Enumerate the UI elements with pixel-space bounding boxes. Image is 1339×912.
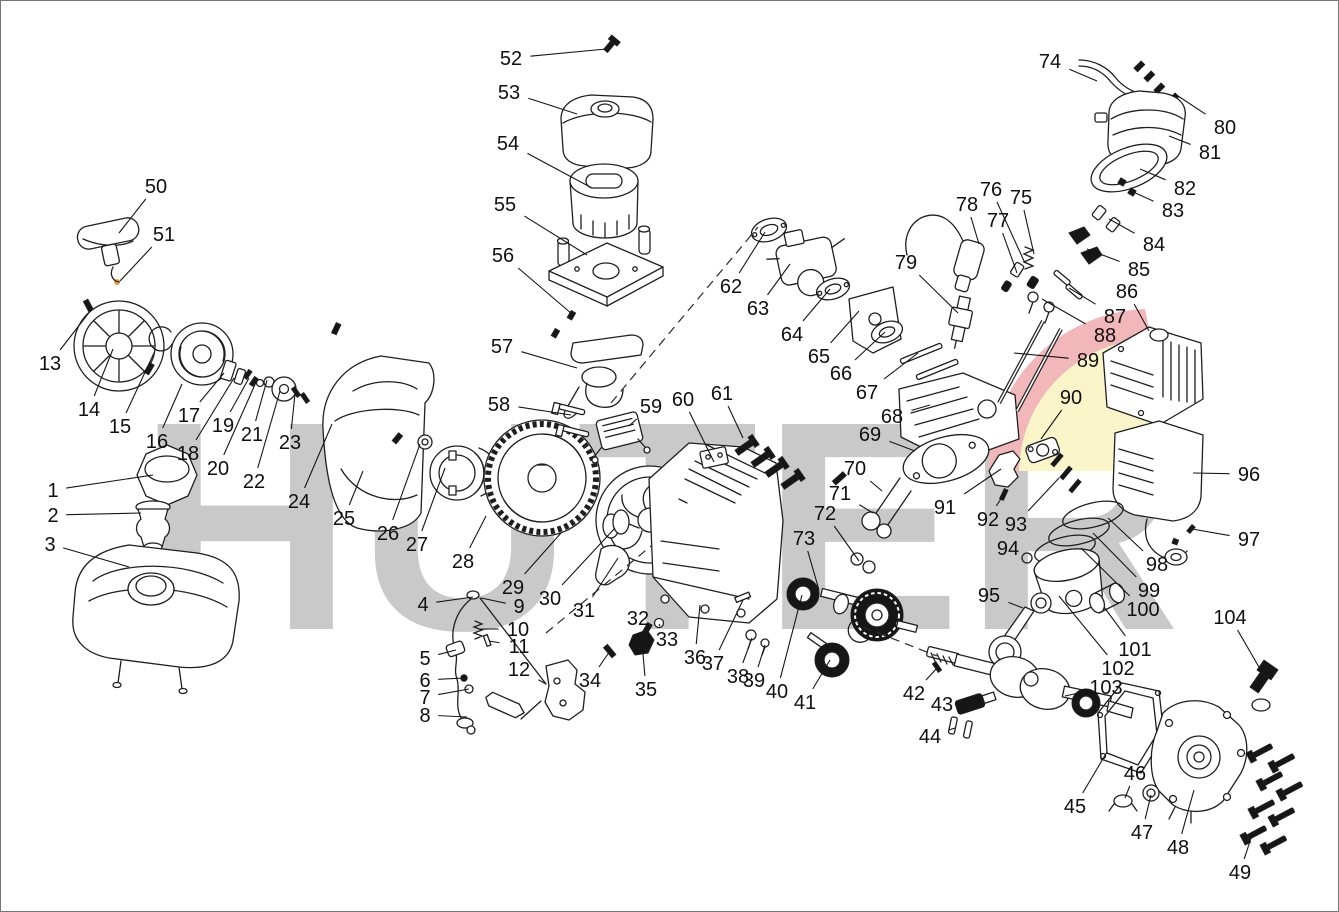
part-number-label: 12: [508, 659, 530, 681]
part-number-label: 55: [494, 194, 516, 216]
part-number-label: 14: [78, 399, 100, 421]
part-number-label: 104: [1213, 607, 1246, 629]
part-number-label: 45: [1064, 796, 1086, 818]
part-number-label: 84: [1143, 234, 1165, 256]
part-number-label: 23: [279, 432, 301, 454]
part-number-label: 71: [829, 483, 851, 505]
leader-line: [971, 217, 979, 244]
part-number-label: 58: [488, 394, 510, 416]
valve-springs: [1001, 247, 1039, 292]
leader-line: [1193, 473, 1230, 474]
part-number-label: 19: [212, 415, 234, 437]
part-number-label: 69: [859, 424, 881, 446]
part-number-label: 95: [978, 585, 1000, 607]
part-number-label: 90: [1060, 387, 1082, 409]
leader-line: [1238, 630, 1263, 674]
part-number-label: 72: [814, 503, 836, 525]
air-filter-base: [549, 226, 663, 338]
part-number-label: 76: [980, 179, 1002, 201]
part-number-label: 27: [406, 534, 428, 556]
part-number-label: 75: [1010, 187, 1032, 209]
leader-line: [1131, 191, 1154, 201]
heat-shield: [849, 287, 901, 353]
leader-line: [1069, 288, 1096, 304]
part-number-label: 73: [793, 528, 815, 550]
leader-line: [1069, 69, 1097, 81]
part-number-label: 93: [1005, 514, 1027, 536]
part-number-label: 83: [1162, 200, 1184, 222]
part-number-label: 94: [997, 538, 1019, 560]
part-number-label: 70: [844, 458, 866, 480]
part-number-label: 88: [1094, 325, 1116, 347]
part-number-label: 4: [417, 594, 428, 616]
leader-line: [1192, 529, 1230, 536]
flywheel-nut: [418, 435, 432, 449]
leader-line: [1003, 233, 1017, 273]
part-number-label: 62: [720, 276, 742, 298]
part-number-label: 100: [1126, 599, 1159, 621]
part-number-label: 79: [895, 252, 917, 274]
part-number-label: 65: [808, 346, 830, 368]
part-number-label: 49: [1229, 862, 1251, 884]
air-filter-element: [570, 164, 638, 238]
part-number-label: 56: [492, 245, 514, 267]
part-number-label: 60: [672, 389, 694, 411]
part-number-label: 77: [987, 210, 1009, 232]
part-number-label: 57: [491, 336, 513, 358]
cover-bolt-set: [1240, 741, 1304, 855]
part-number-label: 81: [1199, 142, 1221, 164]
part-number-label: 41: [794, 692, 816, 714]
part-number-label: 8: [419, 705, 430, 727]
part-number-label: 24: [288, 491, 310, 513]
part-number-label: 30: [539, 588, 561, 610]
part-number-label: 35: [635, 679, 657, 701]
part-number-label: 2: [47, 505, 58, 527]
leader-line: [120, 247, 152, 281]
part-number-label: 17: [178, 405, 200, 427]
part-number-label: 85: [1128, 259, 1150, 281]
part-number-label: 53: [498, 82, 520, 104]
part-number-label: 32: [627, 608, 649, 630]
part-number-label: 78: [956, 194, 978, 216]
part-number-label: 18: [177, 443, 199, 465]
part-number-label: 42: [903, 683, 925, 705]
part-number-label: 47: [1131, 822, 1153, 844]
starter-handle: [75, 216, 140, 282]
part-number-label: 89: [1077, 350, 1099, 372]
flywheel: [484, 420, 600, 536]
part-number-label: 13: [39, 353, 61, 375]
part-number-label: 28: [452, 551, 474, 573]
part-number-label: 50: [145, 176, 167, 198]
part-number-label: 97: [1238, 529, 1260, 551]
leader-line: [739, 232, 765, 273]
leader-line: [1083, 752, 1107, 793]
part-number-label: 22: [243, 471, 265, 493]
part-number-label: 15: [109, 416, 131, 438]
diagram-canvas: HUTER: [0, 0, 1339, 912]
part-number-label: 54: [497, 133, 519, 155]
fan-cover: [323, 323, 434, 531]
part-number-label: 11: [509, 636, 530, 658]
carb-gasket-62: [748, 214, 789, 246]
wing-bolt: [601, 35, 620, 54]
part-number-label: 31: [573, 600, 595, 622]
part-number-label: 82: [1174, 178, 1196, 200]
oil-drain-plug: [1247, 660, 1278, 711]
part-number-label: 1: [47, 480, 58, 502]
leader-line: [530, 49, 606, 56]
part-number-label: 48: [1167, 837, 1189, 859]
part-number-label: 59: [640, 396, 662, 418]
part-number-label: 33: [656, 629, 678, 651]
part-number-label: 9: [513, 596, 524, 618]
part-number-label: 40: [766, 681, 788, 703]
part-number-label: 68: [881, 406, 903, 428]
part-number-label: 26: [377, 523, 399, 545]
part-number-label: 96: [1238, 464, 1260, 486]
part-number-label: 61: [711, 383, 733, 405]
part-number-label: 52: [500, 48, 522, 70]
part-number-label: 29: [502, 577, 524, 599]
part-number-label: 80: [1214, 117, 1236, 139]
ball-bearing: [787, 578, 819, 610]
part-number-label: 91: [934, 497, 956, 519]
part-number-label: 86: [1116, 281, 1138, 303]
part-number-label: 98: [1146, 554, 1168, 576]
part-number-label: 37: [702, 653, 724, 675]
part-number-label: 44: [919, 726, 941, 748]
part-number-label: 103: [1089, 677, 1122, 699]
leader-line: [919, 275, 958, 313]
part-number-label: 74: [1039, 51, 1061, 73]
part-number-label: 66: [830, 363, 852, 385]
part-number-label: 46: [1124, 763, 1146, 785]
part-number-label: 67: [856, 382, 878, 404]
part-number-label: 43: [931, 694, 953, 716]
part-number-label: 21: [241, 424, 263, 446]
air-cleaner-cover: [561, 95, 653, 168]
part-number-label: 25: [333, 508, 355, 530]
part-number-label: 34: [579, 670, 601, 692]
part-number-label: 3: [44, 534, 55, 556]
part-number-label: 64: [781, 324, 803, 346]
part-number-label: 5: [419, 648, 430, 670]
part-number-label: 63: [747, 298, 769, 320]
part-number-label: 16: [146, 431, 168, 453]
part-number-label: 39: [743, 670, 765, 692]
leader-line: [66, 513, 141, 515]
part-number-label: 92: [977, 509, 999, 531]
part-number-label: 51: [153, 224, 175, 246]
part-number-label: 20: [207, 458, 229, 480]
leader-line: [438, 716, 467, 717]
